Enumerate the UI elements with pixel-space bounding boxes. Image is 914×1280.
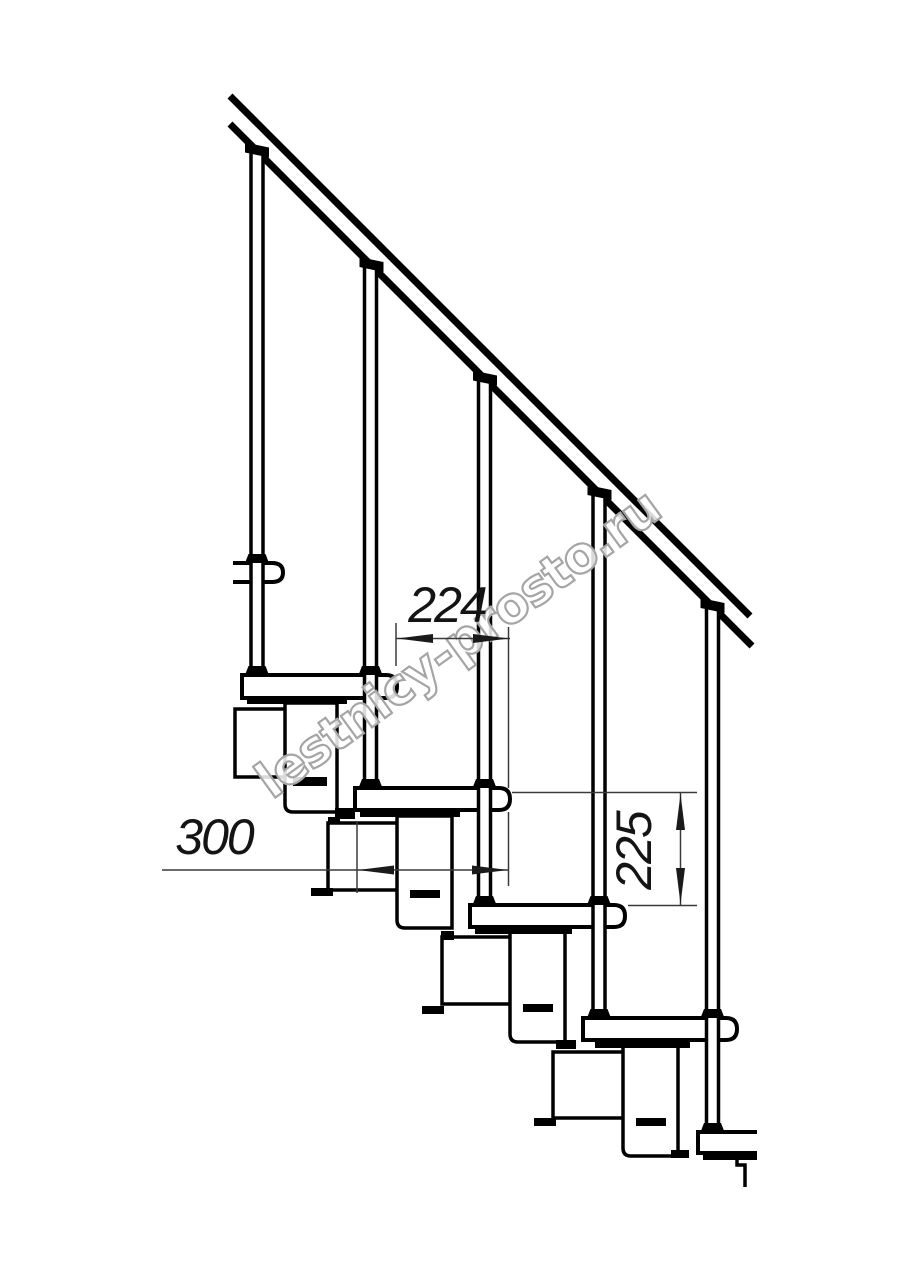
arrow-down-icon: [676, 868, 685, 904]
module-connector: [441, 931, 454, 940]
baluster-clamp: [587, 1009, 611, 1018]
arrow-up-icon: [676, 794, 685, 830]
module-connector: [534, 1118, 556, 1126]
baluster-clamp: [359, 779, 383, 788]
module-connector: [410, 890, 440, 898]
module-connector: [422, 1006, 444, 1014]
tread-5-cut: [698, 1132, 757, 1153]
baluster-clamp: [245, 666, 269, 675]
dimension-run-label: 224: [407, 577, 486, 633]
drawing-canvas: lestnicy-prosto.ru 224 300 225: [0, 0, 914, 1280]
dimension-rise-label: 225: [606, 810, 662, 891]
stringer-module-riser-5-cut: [737, 1158, 745, 1187]
module-connector: [636, 1118, 666, 1126]
module-connector: [671, 1150, 689, 1158]
baluster-clamp: [701, 1009, 725, 1018]
dimension-depth-label: 300: [175, 809, 255, 865]
stringer-module-riser-4: [623, 1041, 678, 1156]
watermark-text: lestnicy-prosto.ru: [245, 478, 671, 810]
stringer-module-riser-3: [510, 927, 565, 1042]
baluster-clamp: [245, 554, 269, 563]
module-connector: [311, 888, 333, 896]
module-connector: [328, 817, 340, 824]
stringer-module-box-2: [328, 823, 405, 890]
baluster-clamp: [473, 896, 497, 905]
module-connector: [523, 1004, 553, 1012]
stringer-module-box-3: [442, 937, 518, 1004]
stringer-module-box-4: [553, 1052, 630, 1118]
baluster-clamp: [587, 896, 611, 905]
module-connector: [556, 1040, 576, 1049]
staircase-technical-drawing: lestnicy-prosto.ru 224 300 225: [0, 0, 914, 1280]
baluster-clamp: [473, 779, 497, 788]
stringer-module-riser-2: [397, 816, 452, 928]
baluster-clamp: [701, 1123, 725, 1132]
